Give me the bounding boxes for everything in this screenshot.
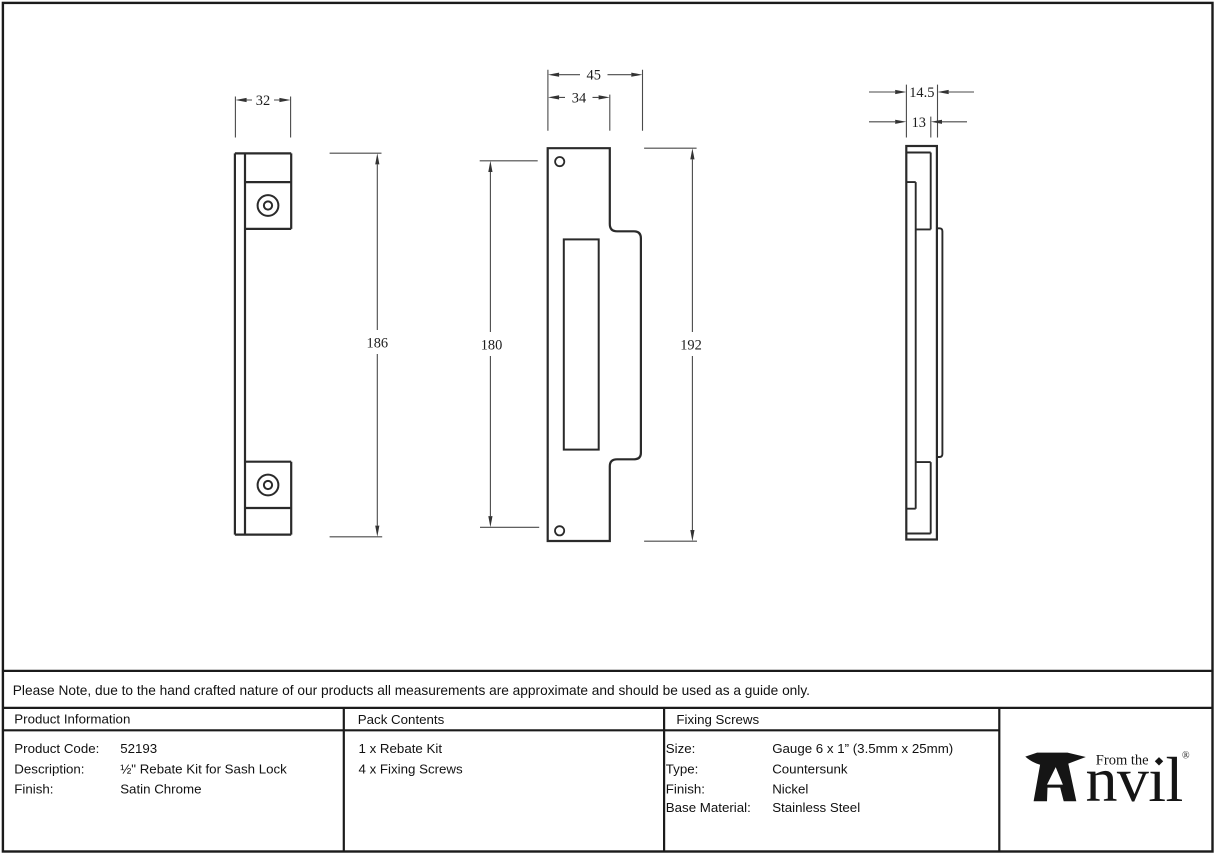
svg-text:1 x Rebate Kit: 1 x Rebate Kit xyxy=(359,741,443,756)
svg-text:Finish:: Finish: xyxy=(14,782,53,797)
svg-text:Countersunk: Countersunk xyxy=(772,762,848,777)
svg-text:Base Material:: Base Material: xyxy=(666,800,751,815)
svg-text:Type:: Type: xyxy=(666,762,699,777)
svg-text:Satin Chrome: Satin Chrome xyxy=(120,782,201,797)
svg-text:½" Rebate Kit for Sash Lock: ½" Rebate Kit for Sash Lock xyxy=(120,762,287,777)
svg-text:180: 180 xyxy=(481,338,503,354)
svg-text:®: ® xyxy=(1182,751,1190,762)
svg-text:4 x Fixing Screws: 4 x Fixing Screws xyxy=(359,762,464,777)
svg-text:Description:: Description: xyxy=(14,762,84,777)
svg-text:186: 186 xyxy=(367,336,389,352)
svg-text:Nickel: Nickel xyxy=(772,782,808,797)
svg-text:34: 34 xyxy=(572,90,586,106)
svg-text:Please Note, due to the hand c: Please Note, due to the hand crafted nat… xyxy=(13,683,810,698)
svg-text:Size:: Size: xyxy=(666,741,696,756)
svg-text:Product Code:: Product Code: xyxy=(14,741,99,756)
svg-text:Pack Contents: Pack Contents xyxy=(358,712,445,727)
svg-text:Product Information: Product Information xyxy=(14,712,130,727)
svg-text:45: 45 xyxy=(587,68,601,84)
svg-text:192: 192 xyxy=(680,338,702,354)
svg-text:13: 13 xyxy=(912,115,926,131)
svg-text:14.5: 14.5 xyxy=(909,85,934,101)
svg-text:32: 32 xyxy=(256,93,270,109)
svg-text:nvıl: nvıl xyxy=(1086,744,1183,815)
svg-text:Gauge 6 x 1” (3.5mm x 25mm): Gauge 6 x 1” (3.5mm x 25mm) xyxy=(772,741,953,756)
svg-text:Stainless Steel: Stainless Steel xyxy=(772,800,860,815)
svg-text:Fixing Screws: Fixing Screws xyxy=(676,712,759,727)
svg-text:52193: 52193 xyxy=(120,741,157,756)
svg-text:Finish:: Finish: xyxy=(666,782,705,797)
